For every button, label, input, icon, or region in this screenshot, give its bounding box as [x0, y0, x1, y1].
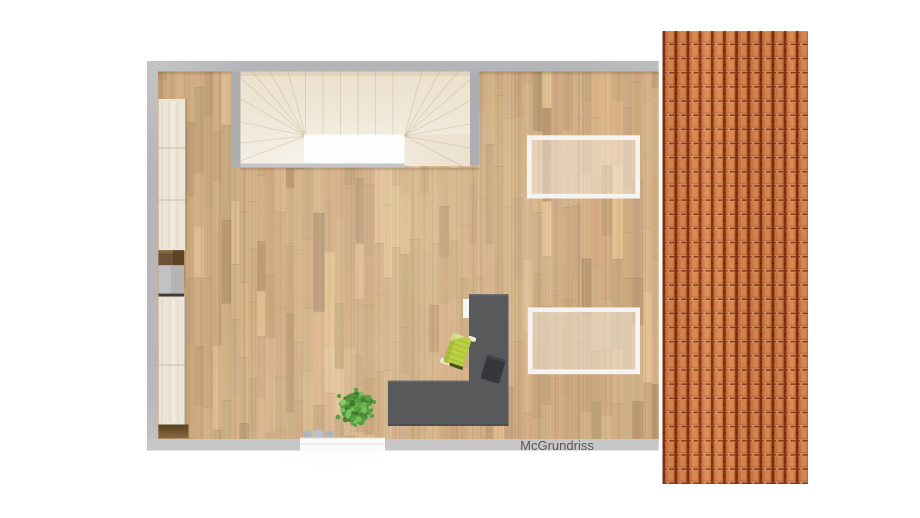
- svg-text:McGrundriss: McGrundriss: [520, 438, 594, 453]
